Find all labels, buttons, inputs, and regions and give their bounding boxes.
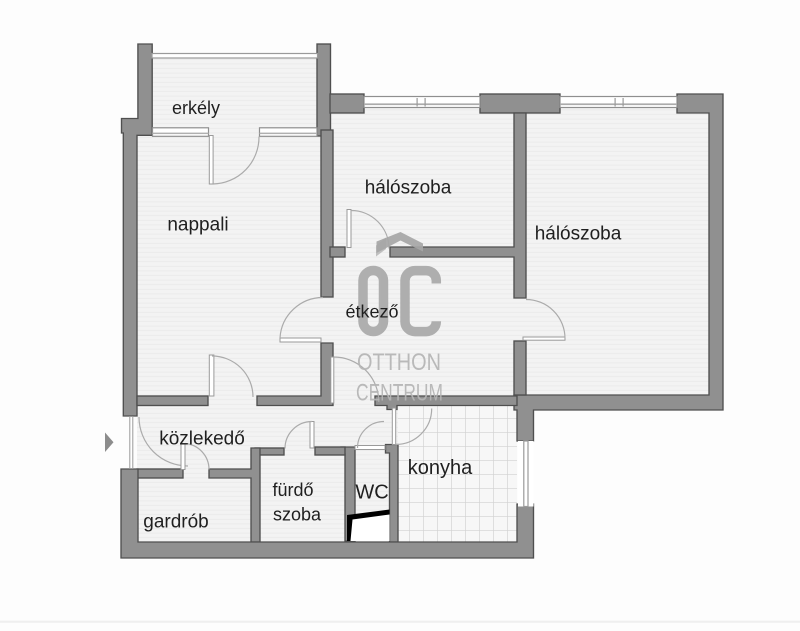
svg-text:CENTRUM: CENTRUM — [356, 380, 443, 407]
svg-text:közlekedő: közlekedő — [159, 429, 245, 450]
svg-text:konyha: konyha — [408, 457, 473, 479]
svg-text:nappali: nappali — [167, 215, 228, 236]
svg-text:hálószoba: hálószoba — [365, 178, 452, 199]
svg-text:szoba: szoba — [273, 505, 322, 525]
svg-text:gardrób: gardrób — [143, 512, 209, 533]
svg-text:WC: WC — [355, 482, 388, 504]
svg-text:étkező: étkező — [345, 301, 398, 321]
svg-text:erkély: erkély — [172, 98, 220, 118]
svg-text:OTTHON: OTTHON — [357, 349, 441, 376]
svg-text:fürdő: fürdő — [272, 480, 313, 500]
svg-text:hálószoba: hálószoba — [535, 224, 622, 245]
